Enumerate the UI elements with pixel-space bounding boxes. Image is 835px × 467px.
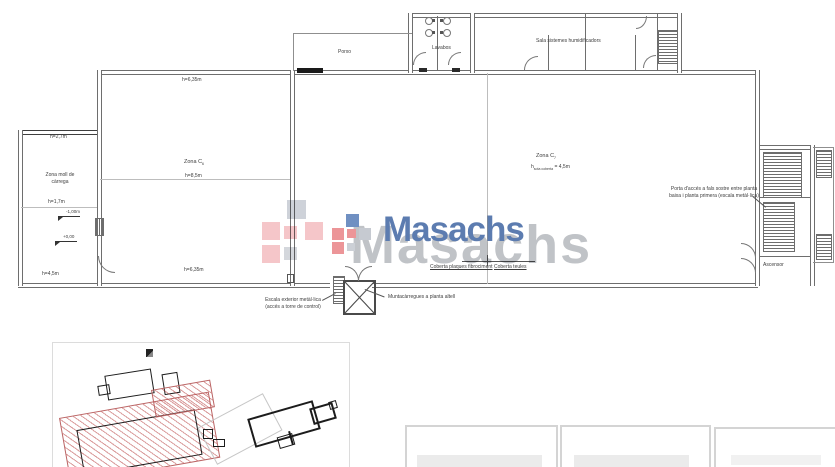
north-symbol-icon (146, 349, 153, 357)
logo-square (305, 222, 323, 240)
level-value: -1,00m (66, 209, 80, 215)
title-block-box (714, 427, 835, 467)
exterior-stair-outline (813, 262, 834, 263)
site-building (97, 384, 110, 396)
door-swing (636, 16, 647, 29)
faint-content (731, 455, 821, 465)
roof-label-left: Coberta plaques fibrociment (430, 264, 493, 271)
logo-square (262, 222, 280, 240)
stair-hatch (816, 150, 832, 178)
toilet-tank (432, 31, 435, 34)
faint-content (417, 455, 542, 467)
room-label-zone-c6: Zona C6 (184, 159, 204, 167)
height-label: h=8,5m (185, 173, 202, 180)
roof-measure-line (462, 261, 535, 262)
note-exterior-stair: Escala exterior metàl·lica (accés a torr… (263, 297, 323, 310)
note-attic-door-line1: Porta d'accés a fals sostre entre planta (658, 186, 770, 193)
toilet-tank (432, 19, 435, 22)
room-label-elevator: Ascensor (763, 262, 784, 269)
height-label: h=1,7m (48, 199, 65, 206)
toilet-icon (443, 29, 451, 37)
wall (372, 283, 758, 288)
wall (810, 145, 815, 286)
exterior-stair-outline (813, 147, 833, 148)
door-swing (413, 52, 426, 65)
roof-label-right: Coberta teules (494, 264, 527, 271)
partition (437, 16, 438, 71)
level-arrow-icon (55, 242, 60, 246)
door-leaf (419, 68, 427, 72)
wall (97, 70, 102, 286)
toilet-tank (440, 19, 443, 22)
door-swing (741, 243, 756, 258)
wall (755, 145, 813, 150)
roof-change-line (487, 73, 488, 284)
height-label: h=6,35m (182, 77, 202, 84)
room-label-porch: Porxo (338, 49, 351, 56)
ramp-hatch (95, 218, 104, 236)
logo-square (347, 243, 355, 251)
stair-hatch (816, 234, 832, 260)
height-label: h=4,5m (42, 271, 59, 278)
loading-zone-line (21, 207, 97, 208)
level-value: +0,00 (63, 234, 74, 240)
room-label-zone-c7: Zona C7 (536, 153, 556, 161)
zone-c6-text: Zona C (184, 159, 202, 165)
wall (97, 70, 758, 75)
site-key-plan (52, 342, 350, 467)
wall (470, 13, 475, 73)
faint-content (574, 455, 689, 467)
zone-c7-sub: 7 (554, 156, 556, 160)
wall (18, 130, 23, 286)
level-arrow-icon (58, 217, 63, 221)
site-detail (213, 439, 225, 447)
porch-outline (293, 33, 294, 71)
room-label-humidifier: Sala sistemes humidificadors (536, 38, 601, 45)
wall (755, 256, 813, 259)
site-building (328, 400, 338, 410)
toilet-tank (440, 31, 443, 34)
zone-c7-text: Zona C (536, 153, 554, 159)
porch-outline (293, 33, 412, 34)
door-swing (524, 56, 538, 70)
door-swing (643, 55, 656, 68)
note-exterior-stair-line2: (accés a torre de control) (263, 304, 323, 311)
wall (18, 283, 330, 288)
logo-square (347, 229, 356, 238)
height-label: h=2,7m (50, 134, 67, 141)
exterior-stair-outline (833, 147, 834, 262)
title-block-box (405, 425, 558, 467)
room-label-toilets: Lavabos (432, 45, 451, 52)
site-detail (203, 429, 213, 439)
under-roof-sub: sota coberta (534, 167, 553, 171)
toilet-icon (443, 17, 451, 25)
freight-elevator-shaft (343, 280, 376, 315)
partition (635, 35, 636, 71)
zone-c6-sub: 6 (202, 162, 204, 166)
logo-square (332, 242, 344, 254)
title-block-box (560, 425, 711, 467)
door-swing (448, 52, 461, 65)
door-swing (741, 258, 756, 273)
door-leaf (452, 68, 460, 72)
height-label-under-roof: hsota coberta = 4,5m (531, 164, 570, 172)
logo-square (346, 214, 359, 227)
wall (290, 70, 295, 286)
note-freight: Muntacàrregues a planta altell (388, 294, 455, 301)
under-roof-value: = 4,5m (554, 164, 569, 170)
stair-hatch (763, 202, 795, 252)
floor-plan-sheet: Porxo Lavabos Sala sistemes humidificado… (0, 0, 835, 467)
wall-niche (287, 274, 294, 283)
site-highlighted-outline (76, 409, 202, 467)
logo-square (262, 245, 280, 263)
wall (755, 70, 760, 286)
watermark-text-front: Masachs (383, 212, 524, 247)
logo-square (332, 228, 344, 240)
door-swing (345, 266, 359, 281)
height-label: h=6,35m (184, 267, 204, 274)
logo-square (359, 228, 371, 240)
note-exterior-stair-line1: Escala exterior metàl·lica (263, 297, 323, 304)
stair-hatch (658, 30, 678, 64)
site-building (104, 368, 154, 400)
door-leaf (297, 68, 323, 73)
room-label-loading-zone: Zona moll de càrrega (38, 172, 82, 185)
door-swing (358, 266, 372, 281)
